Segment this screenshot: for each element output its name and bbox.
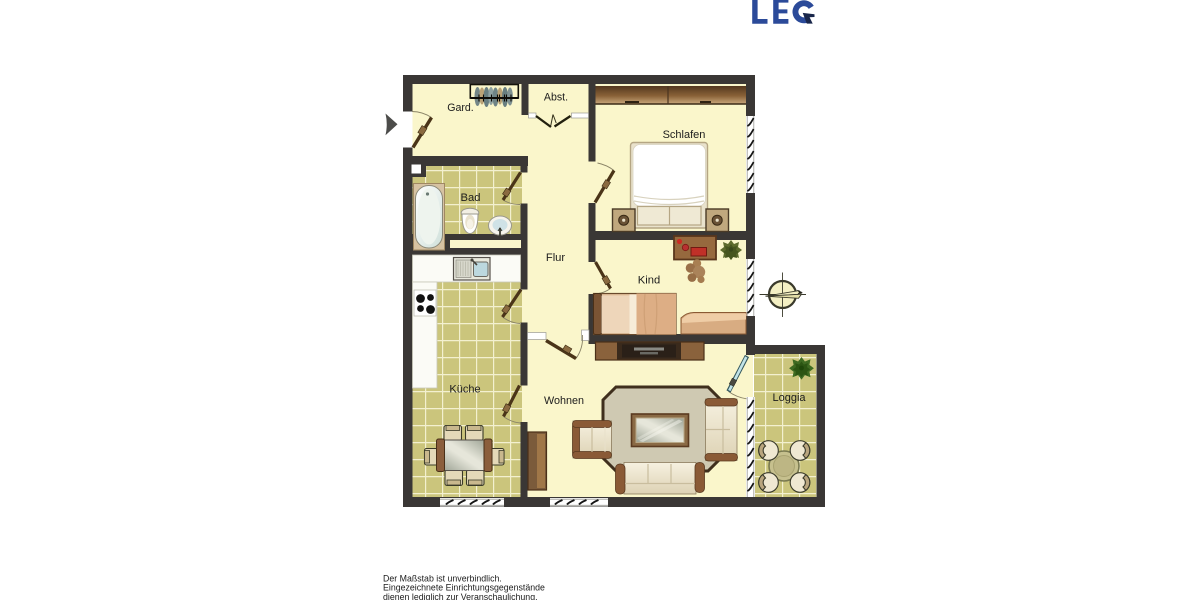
svg-text:Gard.: Gard.	[447, 102, 474, 114]
svg-text:Schlafen: Schlafen	[663, 129, 706, 141]
svg-text:dienen lediglich zur Veranscha: dienen lediglich zur Veranschaulichung.	[383, 592, 538, 600]
svg-text:Loggia: Loggia	[772, 392, 806, 404]
svg-text:Flur: Flur	[546, 252, 566, 264]
svg-text:Wohnen: Wohnen	[544, 395, 584, 407]
svg-text:Küche: Küche	[449, 384, 480, 396]
svg-text:Abst.: Abst.	[544, 92, 568, 104]
svg-text:Kind: Kind	[638, 275, 660, 287]
svg-text:Bad: Bad	[461, 192, 481, 204]
